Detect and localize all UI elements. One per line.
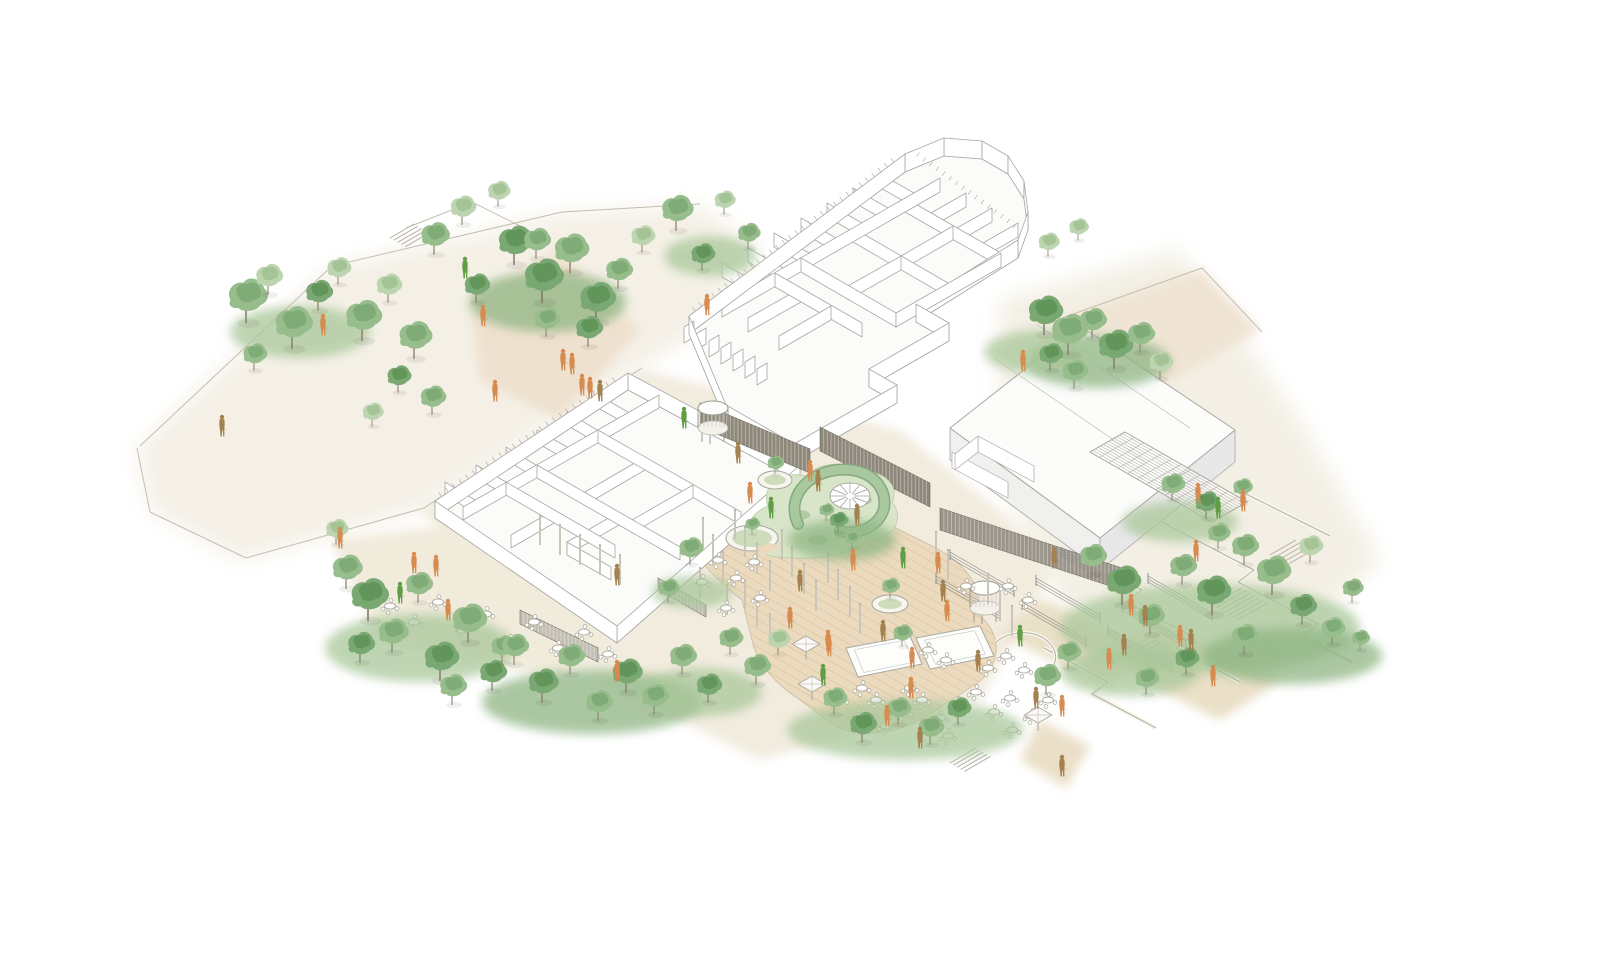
light-pole [769,560,771,591]
light-pole [744,579,746,610]
light-pole [791,546,793,577]
tree [488,181,510,209]
light-pole [702,517,704,548]
light-pole [837,569,839,600]
light-pole [579,534,581,565]
light-pole [1011,605,1013,636]
light-pole [849,586,851,617]
person-figure [1059,695,1067,717]
tree [440,674,467,708]
light-pole [756,543,758,574]
site-plan-canvas [0,0,1600,970]
light-pole [734,509,736,540]
tree [715,191,736,218]
light-pole [539,514,541,545]
light-pole [559,524,561,555]
tree [451,196,476,228]
light-pole [744,526,746,557]
cafe-table [1015,663,1033,679]
light-pole [781,529,783,560]
tree [1070,218,1089,243]
light-pole [815,580,817,611]
cafe-table [1001,691,1019,707]
light-pole [947,549,949,580]
axonometric-site-illustration [0,0,1600,970]
light-pole [722,551,724,582]
light-pole [859,603,861,634]
light-pole [803,563,805,594]
light-pole [999,589,1001,620]
light-pole [987,573,989,604]
person-figure [1033,687,1041,709]
tree [1343,579,1364,606]
light-pole [599,544,601,575]
tree [1039,233,1060,260]
